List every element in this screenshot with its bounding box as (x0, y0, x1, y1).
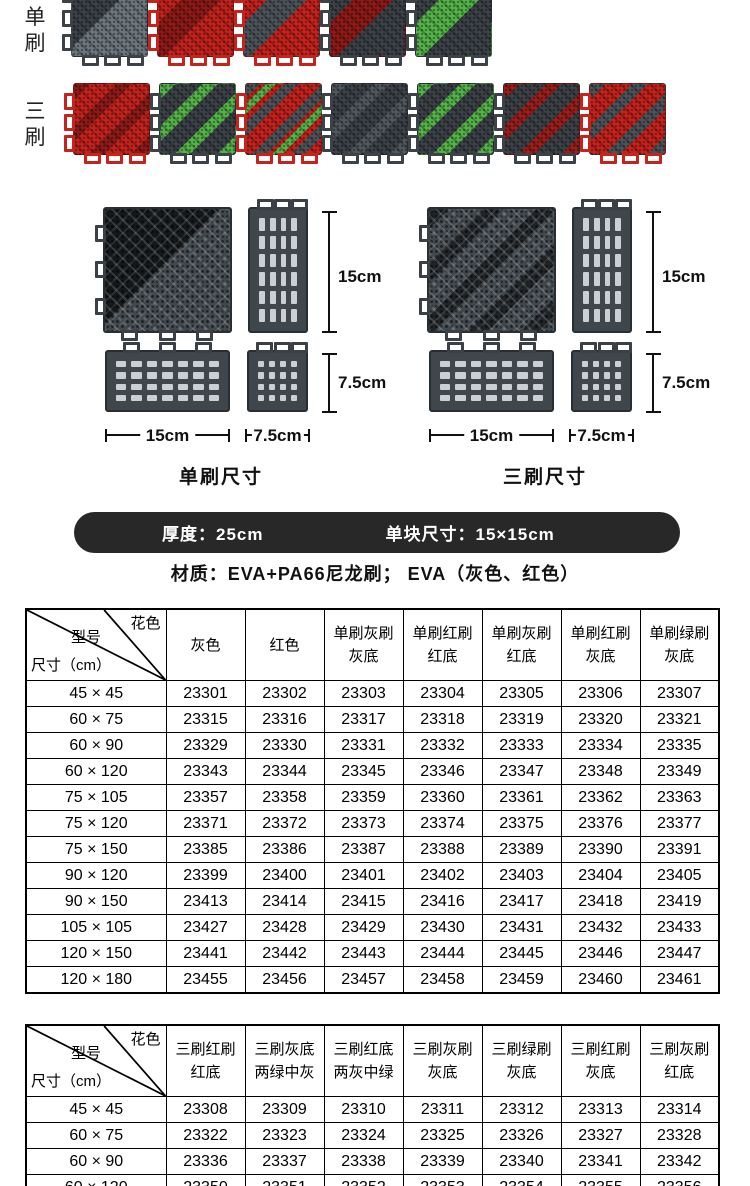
connector-tab (168, 55, 185, 66)
code-cell: 23331 (324, 733, 403, 759)
code-cell: 23399 (166, 863, 245, 889)
connector-tab (148, 0, 159, 3)
connector-tab (320, 10, 331, 27)
code-cell: 23302 (245, 681, 324, 707)
table-row: 60 × 75233152331623317233182331923320233… (26, 707, 719, 733)
drain-hole (517, 372, 527, 378)
connector-tab (471, 55, 488, 66)
drain-hole (593, 395, 599, 401)
code-cell: 23376 (561, 811, 640, 837)
drain-hole (583, 236, 589, 249)
drain-hole (594, 254, 600, 267)
code-cell: 23341 (561, 1149, 640, 1175)
table-row: 45 × 45233082330923310233112331223313233… (26, 1097, 719, 1123)
diagram-caption: 单刷尺寸 (101, 462, 341, 489)
column-header: 单刷灰刷灰底 (324, 609, 403, 681)
code-cell: 23311 (403, 1097, 482, 1123)
code-cell: 23417 (482, 889, 561, 915)
drain-hole (291, 384, 297, 390)
drain-hole (269, 384, 275, 390)
code-cell: 23305 (482, 681, 561, 707)
code-cell: 23446 (561, 941, 640, 967)
drain-hole (582, 395, 588, 401)
code-cell: 23343 (166, 759, 245, 785)
connector-tab (364, 153, 381, 164)
connector-tab (278, 153, 295, 164)
drain-hole (605, 254, 611, 267)
column-header: 单刷绿刷灰底 (640, 609, 719, 681)
table-row: 75 × 15023385233862338723388233892339023… (26, 837, 719, 863)
connector-tab (190, 55, 207, 66)
code-cell: 23309 (245, 1097, 324, 1123)
drain-hole (269, 361, 275, 367)
table-row: 60 × 12023343233442334523346233472334823… (26, 759, 719, 785)
connector-tab (234, 0, 245, 3)
connector-tab (514, 153, 531, 164)
code-cell: 23390 (561, 837, 640, 863)
code-cell: 23306 (561, 681, 640, 707)
code-cell: 23363 (640, 785, 719, 811)
triple-brush-row-label: 三刷 (22, 99, 48, 151)
connector-tab (387, 153, 404, 164)
drain-hole (486, 384, 496, 390)
code-cell: 23430 (403, 915, 482, 941)
corner-strip-image (247, 350, 308, 412)
connector-tab (406, 34, 417, 51)
code-cell: 23459 (482, 967, 561, 994)
size-cell: 60 × 75 (26, 1123, 166, 1149)
width2-measure-line: 7.5cm (569, 434, 634, 436)
code-cell: 23301 (166, 681, 245, 707)
connector-tab (127, 55, 144, 66)
code-cell: 23318 (403, 707, 482, 733)
single-gray-gray-brush-tile (71, 0, 148, 57)
code-cell: 23441 (166, 941, 245, 967)
height2-measure-line (328, 353, 330, 413)
code-cell: 23373 (324, 811, 403, 837)
drain-hole (291, 291, 297, 304)
drain-hole (594, 236, 600, 249)
height2-measure-line (652, 353, 654, 413)
single-brush-row-label: 单刷 (22, 5, 48, 57)
width-measure-line: 15cm (105, 434, 230, 436)
triple-red-gray-brush-tile (589, 83, 666, 155)
connector-tab (159, 330, 176, 341)
code-cell: 23328 (640, 1123, 719, 1149)
corner-label: 型号 (71, 1046, 101, 1061)
table-row: 120 × 1502344123442234432344423445234462… (26, 941, 719, 967)
drain-hole (605, 218, 611, 231)
code-cell: 23352 (324, 1175, 403, 1186)
code-cell: 23405 (640, 863, 719, 889)
drain-hole (209, 361, 219, 367)
connector-tab (322, 114, 333, 131)
connector-tab (559, 153, 576, 164)
diagram-caption: 三刷尺寸 (425, 462, 665, 489)
drain-hole (615, 236, 621, 249)
connector-tab (95, 298, 106, 315)
size-cell: 60 × 90 (26, 733, 166, 759)
connector-tab (62, 10, 73, 27)
drain-hole (533, 372, 543, 378)
code-cell: 23403 (482, 863, 561, 889)
column-header: 三刷灰底两绿中灰 (245, 1025, 324, 1097)
connector-tab (340, 55, 357, 66)
single-brush-dimension-diagram: 15cm 7.5cm 15cm 7.5cm 单刷尺寸 (95, 205, 395, 495)
connector-tab (473, 153, 490, 164)
triple-gray-green-wide-brush-tile (417, 83, 494, 155)
triple-brush-dimension-diagram: 15cm 7.5cm 15cm 7.5cm 三刷尺寸 (419, 205, 719, 495)
table-row: 75 × 12023371233722337323374233752337623… (26, 811, 719, 837)
drain-hole (270, 272, 276, 285)
connector-tab (213, 55, 230, 66)
drain-hole (259, 291, 265, 304)
code-cell: 23432 (561, 915, 640, 941)
code-cell: 23324 (324, 1123, 403, 1149)
code-cell: 23335 (640, 733, 719, 759)
width2-measure-label: 7.5cm (575, 426, 627, 445)
connector-tab (291, 199, 308, 210)
width2-measure-label: 7.5cm (251, 426, 303, 445)
drain-hole (116, 372, 126, 378)
column-header: 三刷绿刷灰底 (482, 1025, 561, 1097)
drain-hole (131, 361, 141, 367)
triple-red-gray-green-brush-tile (245, 83, 322, 155)
size-cell: 60 × 120 (26, 759, 166, 785)
drain-hole (486, 395, 496, 401)
connector-tab (234, 34, 245, 51)
drain-hole (583, 272, 589, 285)
connector-tab (426, 55, 443, 66)
code-cell: 23321 (640, 707, 719, 733)
connector-tab (257, 199, 274, 210)
thickness-spec: 厚度：25cm (162, 520, 263, 545)
height-measure-line (328, 211, 330, 333)
connector-tab (192, 153, 209, 164)
drain-hole (291, 372, 297, 378)
drain-hole (280, 384, 286, 390)
connector-tab (150, 114, 161, 131)
drain-hole (502, 361, 512, 367)
drain-hole (270, 291, 276, 304)
connector-tab (520, 330, 537, 341)
spec-bar: 厚度：25cm 单块尺寸：15×15cm (74, 512, 680, 553)
code-cell: 23444 (403, 941, 482, 967)
drain-hole (502, 395, 512, 401)
code-cell: 23310 (324, 1097, 403, 1123)
height-measure-label: 15cm (662, 267, 705, 287)
table-row: 60 × 75233222332323324233252332623327233… (26, 1123, 719, 1149)
drain-hole (615, 218, 621, 231)
height2-measure-label: 7.5cm (338, 373, 386, 393)
code-cell: 23387 (324, 837, 403, 863)
drain-hole (582, 361, 588, 367)
connector-tab (598, 199, 615, 210)
table-header-row: 花色型号尺寸（cm）灰色红色单刷灰刷灰底单刷红刷红底单刷灰刷红底单刷红刷灰底单刷… (26, 609, 719, 681)
drain-hole (615, 254, 621, 267)
code-cell: 23340 (482, 1149, 561, 1175)
single-red-red-brush-tile (157, 0, 234, 57)
drain-hole (178, 372, 188, 378)
drain-hole (605, 291, 611, 304)
drain-hole (604, 384, 610, 390)
drain-hole (486, 361, 496, 367)
drain-hole (605, 236, 611, 249)
connector-tab (276, 55, 293, 66)
drain-hole (583, 309, 589, 322)
connector-tab (104, 55, 121, 66)
code-cell: 23358 (245, 785, 324, 811)
connector-tab (342, 153, 359, 164)
code-cell: 23447 (640, 941, 719, 967)
drain-hole (471, 372, 481, 378)
unit-size-spec: 单块尺寸：15×15cm (385, 520, 554, 545)
drain-hole (604, 372, 610, 378)
edge-strip-wide-image (105, 350, 230, 412)
table-row: 120 × 1802345523456234572345823459234602… (26, 967, 719, 994)
connector-tab (234, 10, 245, 27)
code-cell: 23457 (324, 967, 403, 994)
code-cell: 23386 (245, 837, 324, 863)
drain-hole (291, 254, 297, 267)
drain-hole (605, 309, 611, 322)
connector-tab (148, 34, 159, 51)
code-cell: 23375 (482, 811, 561, 837)
drain-hole (131, 384, 141, 390)
code-cell: 23356 (640, 1175, 719, 1186)
material-spec: 材质：EVA+PA66尼龙刷； EVA（灰色、红色） (0, 560, 750, 586)
edge-strip-tall-image (248, 207, 308, 333)
connector-tab (536, 153, 553, 164)
code-cell: 23345 (324, 759, 403, 785)
drain-hole (517, 395, 527, 401)
code-cell: 23443 (324, 941, 403, 967)
column-header: 三刷灰刷红底 (640, 1025, 719, 1097)
drain-hole (270, 309, 276, 322)
drain-hole (455, 361, 465, 367)
code-cell: 23362 (561, 785, 640, 811)
connector-tab (129, 153, 146, 164)
drain-hole (281, 236, 287, 249)
connector-tab (196, 330, 213, 341)
drain-hole (615, 272, 621, 285)
drain-hole (291, 395, 297, 401)
connector-tab (419, 298, 430, 315)
drain-hole (291, 272, 297, 285)
column-header: 红色 (245, 609, 324, 681)
connector-tab (494, 135, 505, 152)
connector-tab (150, 93, 161, 110)
drain-hole (162, 384, 172, 390)
connector-tab (428, 153, 445, 164)
table-row: 45 × 45233012330223303233042330523306233… (26, 681, 719, 707)
column-header: 单刷红刷灰底 (561, 609, 640, 681)
size-cell: 90 × 150 (26, 889, 166, 915)
code-cell: 23445 (482, 941, 561, 967)
code-cell: 23347 (482, 759, 561, 785)
drain-hole (259, 309, 265, 322)
connector-tab (581, 199, 598, 210)
connector-tab (580, 342, 597, 353)
connector-tab (64, 114, 75, 131)
code-cell: 23371 (166, 811, 245, 837)
single-gray-green-brush-tile (415, 0, 492, 57)
code-cell: 23402 (403, 863, 482, 889)
connector-tab (82, 55, 99, 66)
code-cell: 23389 (482, 837, 561, 863)
table-row: 60 × 90233292333023331233322333323334233… (26, 733, 719, 759)
code-cell: 23342 (640, 1149, 719, 1175)
code-cell: 23372 (245, 811, 324, 837)
drain-hole (583, 291, 589, 304)
drain-hole (131, 395, 141, 401)
column-header: 三刷红底两灰中绿 (324, 1025, 403, 1097)
drain-hole (116, 384, 126, 390)
drain-hole (162, 372, 172, 378)
drain-hole (193, 384, 203, 390)
height-measure-label: 15cm (338, 267, 381, 287)
code-cell: 23461 (640, 967, 719, 994)
drain-hole (593, 361, 599, 367)
size-cell: 90 × 120 (26, 863, 166, 889)
size-cell: 120 × 150 (26, 941, 166, 967)
connector-tab (483, 330, 500, 341)
code-cell: 23360 (403, 785, 482, 811)
connector-tab (320, 0, 331, 3)
drain-hole (270, 254, 276, 267)
corner-label: 型号 (71, 630, 101, 645)
connector-tab (195, 342, 212, 353)
drain-hole (533, 384, 543, 390)
code-cell: 23442 (245, 941, 324, 967)
triple-gray-red-brush-tile (503, 83, 580, 155)
drain-hole (605, 272, 611, 285)
connector-tab (254, 55, 271, 66)
single-brush-code-table: 花色型号尺寸（cm）灰色红色单刷灰刷灰底单刷红刷红底单刷灰刷红底单刷红刷灰底单刷… (25, 608, 720, 994)
connector-tab (301, 153, 318, 164)
drain-hole (594, 309, 600, 322)
triple-brush-tile-strip (73, 83, 666, 155)
connector-tab (215, 153, 232, 164)
triple-brush-code-table: 花色型号尺寸（cm）三刷红刷红底三刷灰底两绿中灰三刷红底两灰中绿三刷灰刷灰底三刷… (25, 1024, 720, 1186)
column-header: 三刷红刷灰底 (561, 1025, 640, 1097)
drain-hole (604, 361, 610, 367)
code-cell: 23385 (166, 837, 245, 863)
drain-hole (178, 384, 188, 390)
drain-hole (116, 395, 126, 401)
width2-measure-line: 7.5cm (245, 434, 310, 436)
size-cell: 120 × 180 (26, 967, 166, 994)
connector-tab (580, 114, 591, 131)
connector-tab (406, 10, 417, 27)
code-cell: 23322 (166, 1123, 245, 1149)
code-cell: 23456 (245, 967, 324, 994)
code-cell: 23314 (640, 1097, 719, 1123)
corner-label: 花色 (130, 1032, 160, 1047)
connector-tab (64, 135, 75, 152)
drain-hole (209, 395, 219, 401)
code-cell: 23431 (482, 915, 561, 941)
code-cell: 23326 (482, 1123, 561, 1149)
drain-hole (193, 372, 203, 378)
code-cell: 23351 (245, 1175, 324, 1186)
code-cell: 23333 (482, 733, 561, 759)
code-cell: 23354 (482, 1175, 561, 1186)
connector-tab (123, 342, 140, 353)
code-cell: 23414 (245, 889, 324, 915)
drain-hole (269, 395, 275, 401)
code-cell: 23416 (403, 889, 482, 915)
width-measure-line: 15cm (429, 434, 554, 436)
code-cell: 23433 (640, 915, 719, 941)
connector-tab (450, 153, 467, 164)
connector-tab (419, 225, 430, 242)
connector-tab (483, 342, 500, 353)
drain-hole (209, 372, 219, 378)
code-cell: 23391 (640, 837, 719, 863)
product-spec-image: 单刷 三刷 15cm 7.5cm 15cm 7.5cm 单刷尺寸 15cm 7.… (0, 0, 750, 1186)
connector-tab (106, 153, 123, 164)
table-corner-header: 花色型号尺寸（cm） (26, 609, 166, 681)
table-row: 75 × 10523357233582335923360233612336223… (26, 785, 719, 811)
drain-hole (582, 372, 588, 378)
code-cell: 23327 (561, 1123, 640, 1149)
connector-tab (406, 0, 417, 3)
connector-tab (95, 261, 106, 278)
drain-hole (440, 384, 450, 390)
drain-hole (270, 218, 276, 231)
code-cell: 23307 (640, 681, 719, 707)
drain-hole (455, 395, 465, 401)
drain-hole (440, 372, 450, 378)
connector-tab (322, 93, 333, 110)
connector-tab (148, 10, 159, 27)
code-cell: 23332 (403, 733, 482, 759)
code-cell: 23329 (166, 733, 245, 759)
code-cell: 23427 (166, 915, 245, 941)
code-cell: 23323 (245, 1123, 324, 1149)
drain-hole (162, 395, 172, 401)
code-cell: 23415 (324, 889, 403, 915)
triple-red-red-brush-tile (73, 83, 150, 155)
connector-tab (408, 114, 419, 131)
table-row: 60 × 90233362333723338233392334023341233… (26, 1149, 719, 1175)
connector-tab (320, 34, 331, 51)
code-cell: 23428 (245, 915, 324, 941)
code-cell: 23350 (166, 1175, 245, 1186)
height-measure-line (652, 211, 654, 333)
code-cell: 23460 (561, 967, 640, 994)
size-cell: 60 × 75 (26, 707, 166, 733)
code-cell: 23336 (166, 1149, 245, 1175)
code-cell: 23338 (324, 1149, 403, 1175)
drain-hole (594, 272, 600, 285)
connector-tab (419, 261, 430, 278)
connector-tab (274, 199, 291, 210)
drain-hole (533, 395, 543, 401)
connector-tab (274, 342, 291, 353)
drain-hole (583, 218, 589, 231)
drain-hole (258, 395, 264, 401)
connector-tab (236, 114, 247, 131)
drain-hole (583, 254, 589, 267)
drain-hole (116, 361, 126, 367)
code-cell: 23315 (166, 707, 245, 733)
drain-hole (147, 372, 157, 378)
code-cell: 23349 (640, 759, 719, 785)
code-cell: 23401 (324, 863, 403, 889)
drain-hole (291, 361, 297, 367)
